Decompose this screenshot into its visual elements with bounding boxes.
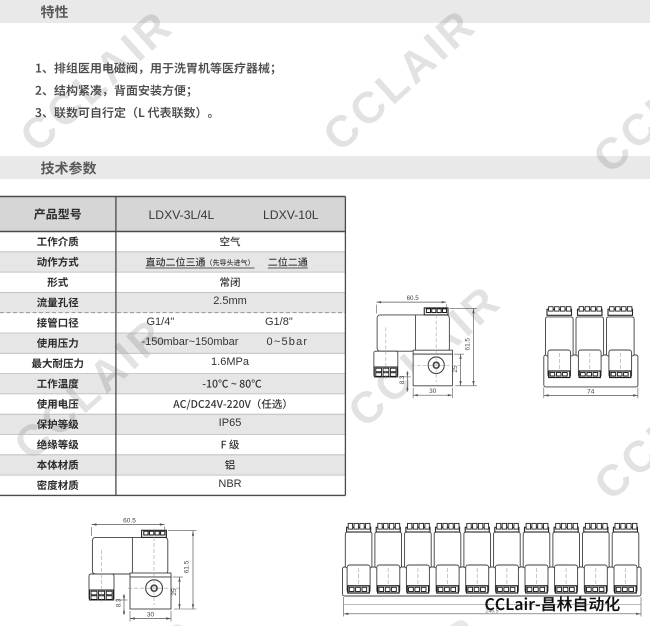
svg-text:61.5: 61.5 — [184, 560, 191, 573]
svg-text:74: 74 — [587, 388, 595, 395]
svg-text:30: 30 — [147, 612, 155, 619]
svg-text:60.5: 60.5 — [123, 518, 136, 525]
svg-text:25: 25 — [171, 588, 178, 596]
svg-text:8.3: 8.3 — [116, 598, 123, 607]
